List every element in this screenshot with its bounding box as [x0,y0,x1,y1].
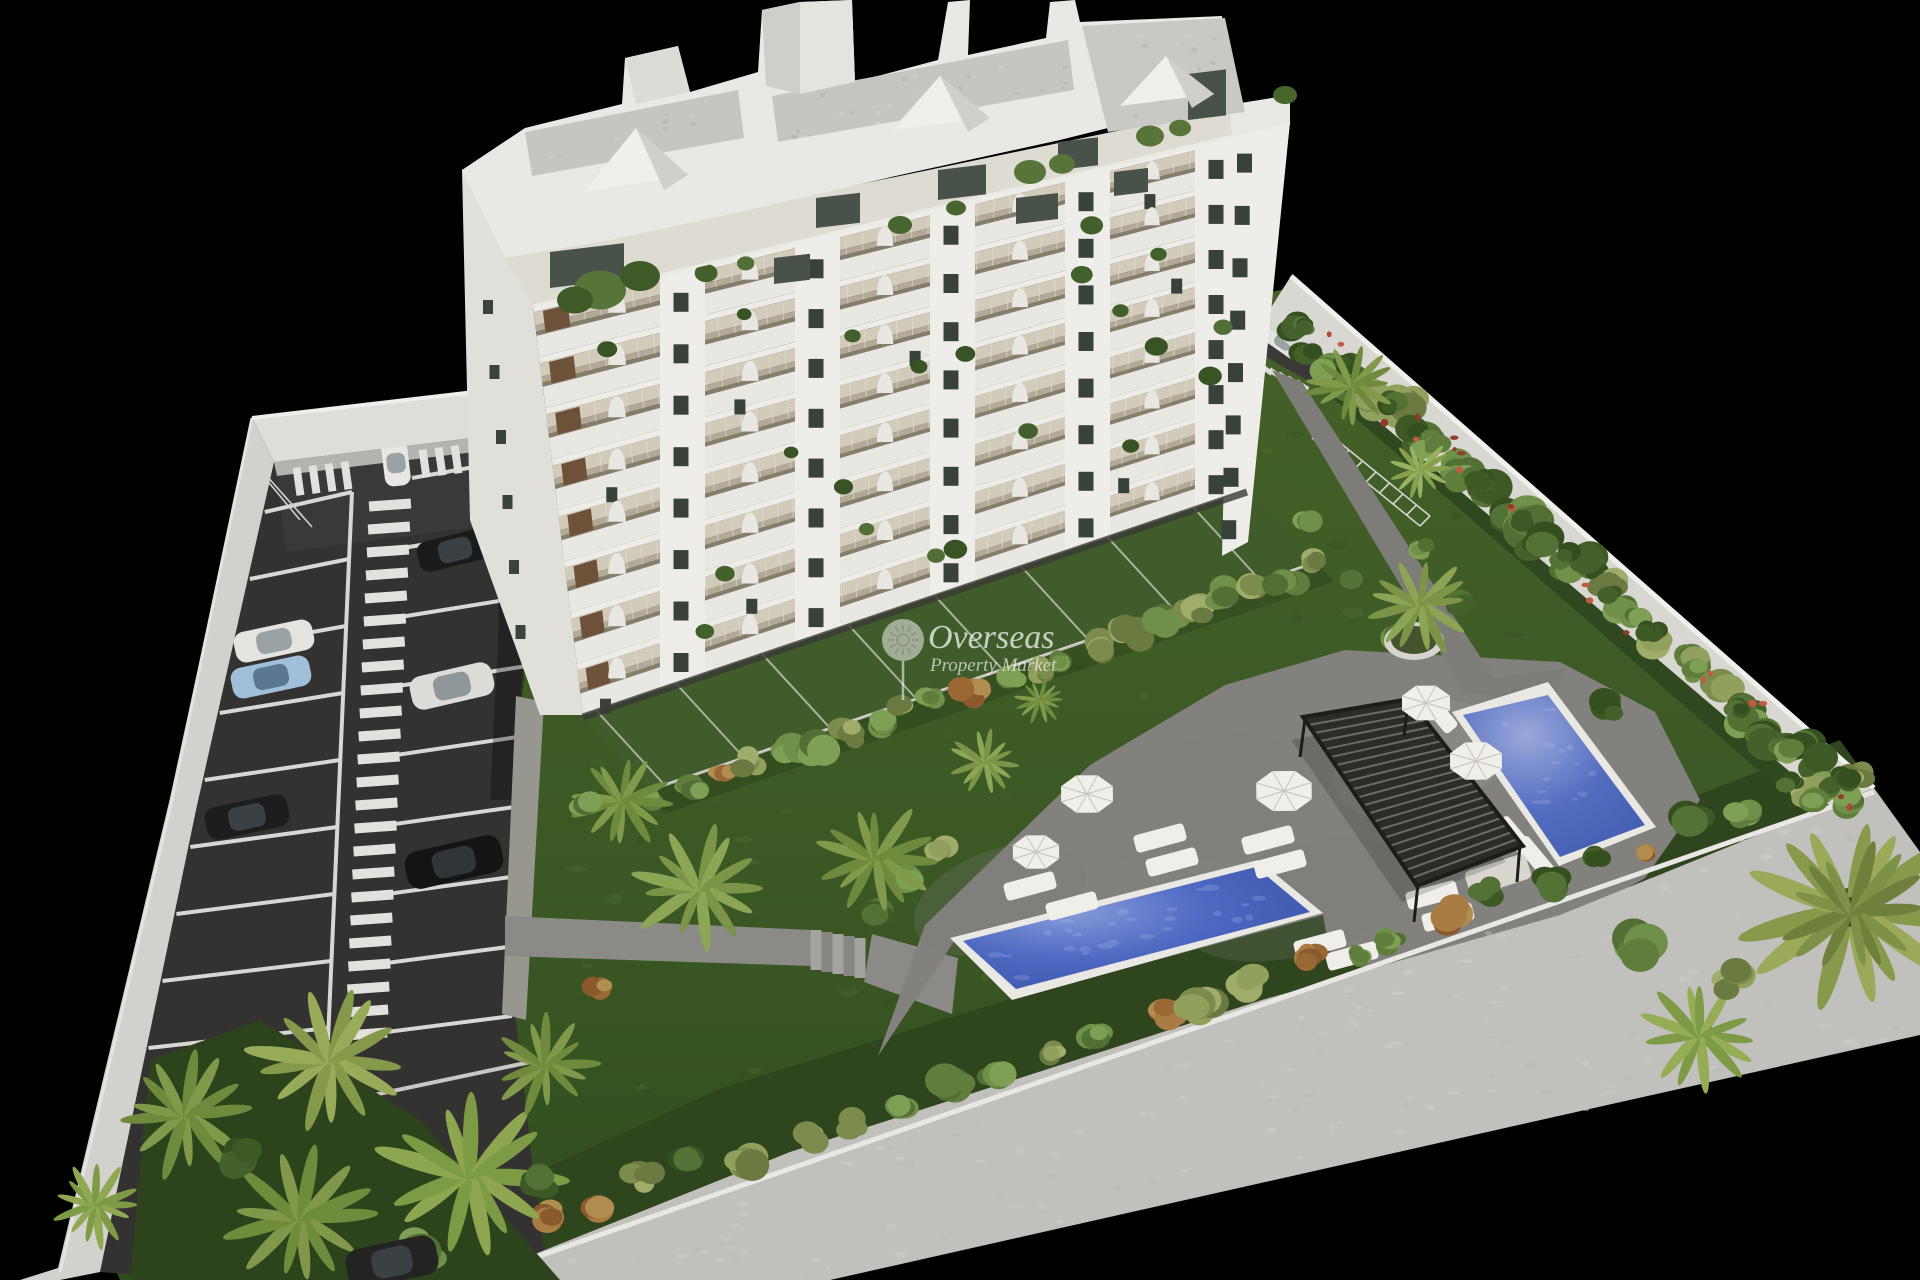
svg-text:Overseas: Overseas [928,619,1055,656]
svg-text:Property Market: Property Market [929,655,1057,676]
